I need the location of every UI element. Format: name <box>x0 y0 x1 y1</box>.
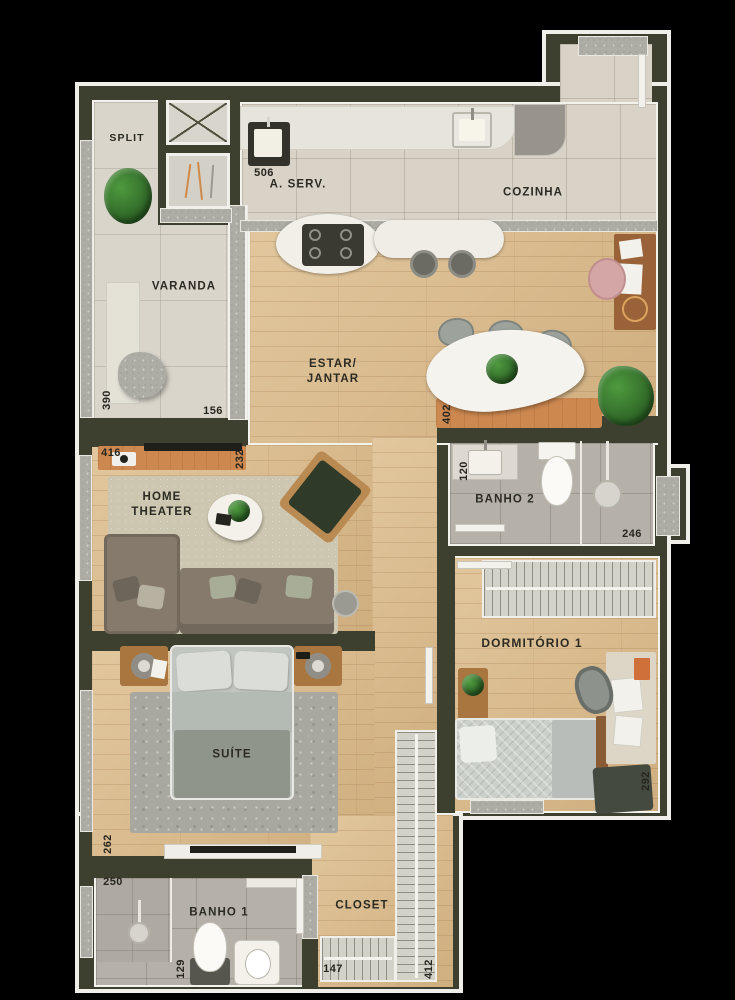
burner-icon <box>309 229 321 241</box>
strip-shaft-bottom <box>160 208 232 223</box>
dim-dormitorio1-depth: 292 <box>640 771 652 791</box>
faucet-icon <box>484 440 487 450</box>
shower-head-icon <box>128 922 150 944</box>
sink-basin <box>459 119 485 141</box>
faucet-icon <box>471 108 474 120</box>
room-label-dormitorio1: DORMITÓRIO 1 <box>481 636 582 652</box>
closet-wardrobe-rail <box>415 734 418 978</box>
room-label-home-theater: HOME THEATER <box>131 490 192 520</box>
banho1-shower-glass <box>170 878 172 962</box>
room-label-closet: CLOSET <box>335 899 388 914</box>
desk-paper <box>610 677 643 714</box>
suite-blanket <box>174 730 290 798</box>
lamp-top <box>138 660 150 672</box>
tv-screen <box>144 443 242 451</box>
sofa-pillow <box>209 574 237 599</box>
suite-phone <box>296 652 310 659</box>
dim-banho1-length: 250 <box>103 876 123 888</box>
broom-icon <box>197 162 203 200</box>
closet-shoe-rail <box>324 957 392 960</box>
banho2-door-leaf <box>455 524 505 532</box>
plant-dining-right <box>598 366 654 426</box>
dim-closet-length: 412 <box>423 959 435 979</box>
dormitorio-door-leaf <box>457 561 512 569</box>
dim-varanda-width: 156 <box>203 405 223 417</box>
plant-varanda <box>104 168 152 224</box>
window-banho2-right <box>656 476 680 536</box>
lamp-top <box>312 660 324 672</box>
room-label-a-serv: A. SERV. <box>270 178 327 193</box>
mop-icon <box>210 165 214 198</box>
stone-pouf <box>118 352 166 398</box>
dorm-desk <box>606 652 656 764</box>
dim-varanda-depth: 390 <box>101 390 113 410</box>
burner-icon <box>309 247 321 259</box>
shower-stem <box>606 441 609 483</box>
divider-frame-1 <box>228 205 230 420</box>
suite-pillow <box>233 651 289 692</box>
room-label-estar-jantar: ESTAR/ JANTAR <box>307 357 359 387</box>
dim-banho2-length: 246 <box>622 528 642 540</box>
entrance-door-leaf <box>638 54 646 108</box>
stool <box>448 250 476 278</box>
stool <box>410 250 438 278</box>
threshold-entrance <box>578 36 648 56</box>
room-label-suite: SUÍTE <box>212 748 251 763</box>
burner-icon <box>340 229 352 241</box>
suite-door-leaf <box>425 647 433 704</box>
wall-corridor-dorm <box>437 553 455 813</box>
room-label-banho1: BANHO 1 <box>189 906 248 921</box>
coffee-table-book <box>215 513 231 526</box>
speaker-dot <box>120 455 128 463</box>
banho1-shelf <box>246 878 302 888</box>
dim-closet-rack: 147 <box>323 963 343 975</box>
banho1-door-leaf <box>296 878 304 934</box>
banho1-shower-area <box>96 878 170 962</box>
dorm-bed-blanket <box>552 720 598 798</box>
room-label-cozinha: COZINHA <box>503 186 563 201</box>
desk-lamp-ring <box>622 296 648 322</box>
dim-home-theater-depth: 232 <box>234 449 246 469</box>
dim-tanque: 506 <box>254 167 274 179</box>
dim-suite-depth: 262 <box>102 834 114 854</box>
broom-icon <box>185 164 192 198</box>
fridge-cabinet <box>514 104 566 156</box>
banho1-vanity <box>234 940 280 985</box>
burner-icon <box>340 247 352 259</box>
banho1-sink <box>245 949 271 979</box>
threshold-banho1-door <box>302 875 318 939</box>
divider-frame-2 <box>245 205 247 420</box>
desk-paper <box>613 715 644 747</box>
tank-basin <box>254 129 282 157</box>
cooktop <box>302 224 364 266</box>
plant-table-centerpiece <box>486 354 518 384</box>
banho2-toilet-bowl <box>541 456 573 506</box>
suite-sheet <box>172 692 292 732</box>
faucet-icon <box>267 117 270 127</box>
shower-head-icon <box>593 480 622 509</box>
window-suite-left <box>80 690 93 832</box>
dim-jantar-sideboard: 402 <box>441 404 453 424</box>
dim-banho2-width: 120 <box>458 461 470 481</box>
desk-paper <box>619 239 643 260</box>
wall-suite-south <box>92 856 312 878</box>
room-label-split: SPLIT <box>109 132 144 146</box>
shaft-x-box <box>166 100 230 145</box>
desk-chair <box>588 258 626 300</box>
side-table <box>332 590 359 617</box>
dorm-bed-pillow <box>459 725 497 763</box>
kitchen-island <box>374 220 504 258</box>
room-label-varanda: VARANDA <box>152 280 216 295</box>
window-banho1-left <box>80 886 93 958</box>
dim-home-theater-width: 416 <box>101 447 121 459</box>
kitchen-sink <box>452 112 492 148</box>
wall-banho1-door-south <box>302 939 318 987</box>
desk-book <box>634 658 650 680</box>
sofa-pillow <box>136 584 165 610</box>
dormitorio-wardrobe-rail <box>486 587 652 590</box>
laundry-tank <box>248 122 290 166</box>
room-label-banho2: BANHO 2 <box>475 493 534 508</box>
window-dormitorio-bottom <box>470 800 544 814</box>
suite-tv-screen <box>190 846 296 853</box>
suite-pillow <box>176 650 233 692</box>
window-varanda-left <box>80 140 93 418</box>
floor-plan: SPLIT A. SERV. COZINHA VARANDA ESTAR/ JA… <box>0 0 735 1000</box>
window-home-theater-left <box>79 455 92 581</box>
banho2-sink <box>468 450 502 475</box>
banho2-shower-glass <box>580 441 582 545</box>
plant-dorm <box>462 674 484 696</box>
shaft-technical <box>166 153 230 209</box>
dim-banho1-width: 129 <box>175 959 187 979</box>
sofa-pillow <box>285 575 313 600</box>
banho1-toilet-bowl <box>193 922 227 972</box>
plant-coffee-table <box>228 500 250 522</box>
